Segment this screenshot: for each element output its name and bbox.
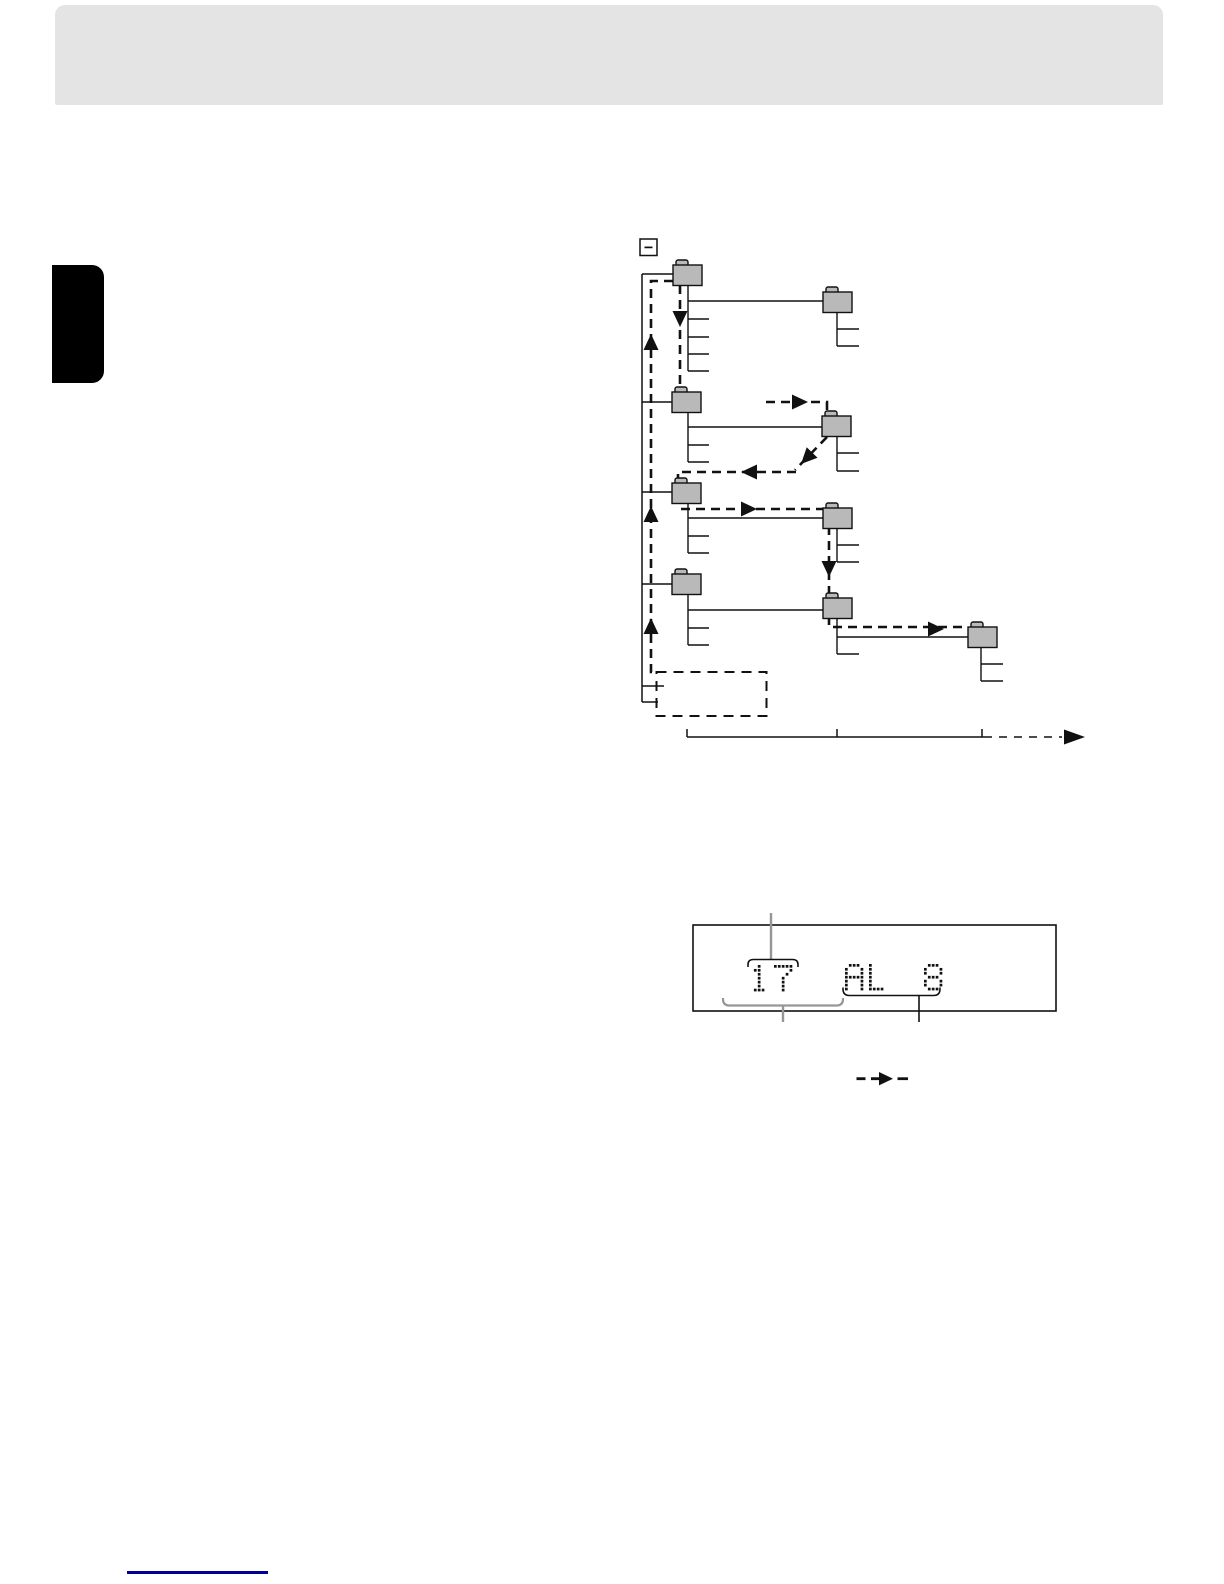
collapse-minus-icon (640, 239, 657, 256)
folder-icon (672, 569, 701, 595)
arrow-down-icon (673, 311, 688, 327)
arrow-right-icon (741, 502, 757, 517)
axis-arrow-icon (1064, 730, 1085, 745)
tree-lines (642, 274, 673, 702)
folder-tree-diagram: 17 AL 8 (600, 230, 1124, 750)
header-bar (55, 5, 1163, 105)
timeline-axis (687, 729, 1085, 745)
arrow-left-icon (741, 465, 757, 480)
folder-icon (672, 478, 701, 504)
folder-icon (968, 622, 997, 648)
manual-page: 17 AL 8 (0, 0, 1224, 1584)
folder-icon (672, 387, 701, 413)
arrow-down-icon (822, 561, 837, 577)
folder-icon (822, 411, 851, 437)
folder-icon (823, 593, 852, 619)
arrow-up-icon (644, 334, 659, 350)
folders (672, 260, 997, 648)
arrow-up-icon (644, 618, 659, 634)
chapter-side-tab (52, 265, 104, 383)
footer-link-underline[interactable] (127, 1571, 268, 1574)
folder-icon (823, 503, 852, 529)
arrow-right-icon (928, 622, 944, 637)
track-lines (688, 285, 1003, 681)
playback-order-dashed-arrow-icon (857, 1072, 909, 1085)
arrow-up-icon (644, 506, 659, 522)
dashed-highlight-box (657, 672, 767, 716)
display-frame (693, 925, 1056, 1011)
arrow-right-icon (792, 395, 808, 410)
lcd-display-panel (680, 895, 1080, 1100)
folder-icon (673, 260, 702, 286)
folder-icon (823, 287, 852, 313)
